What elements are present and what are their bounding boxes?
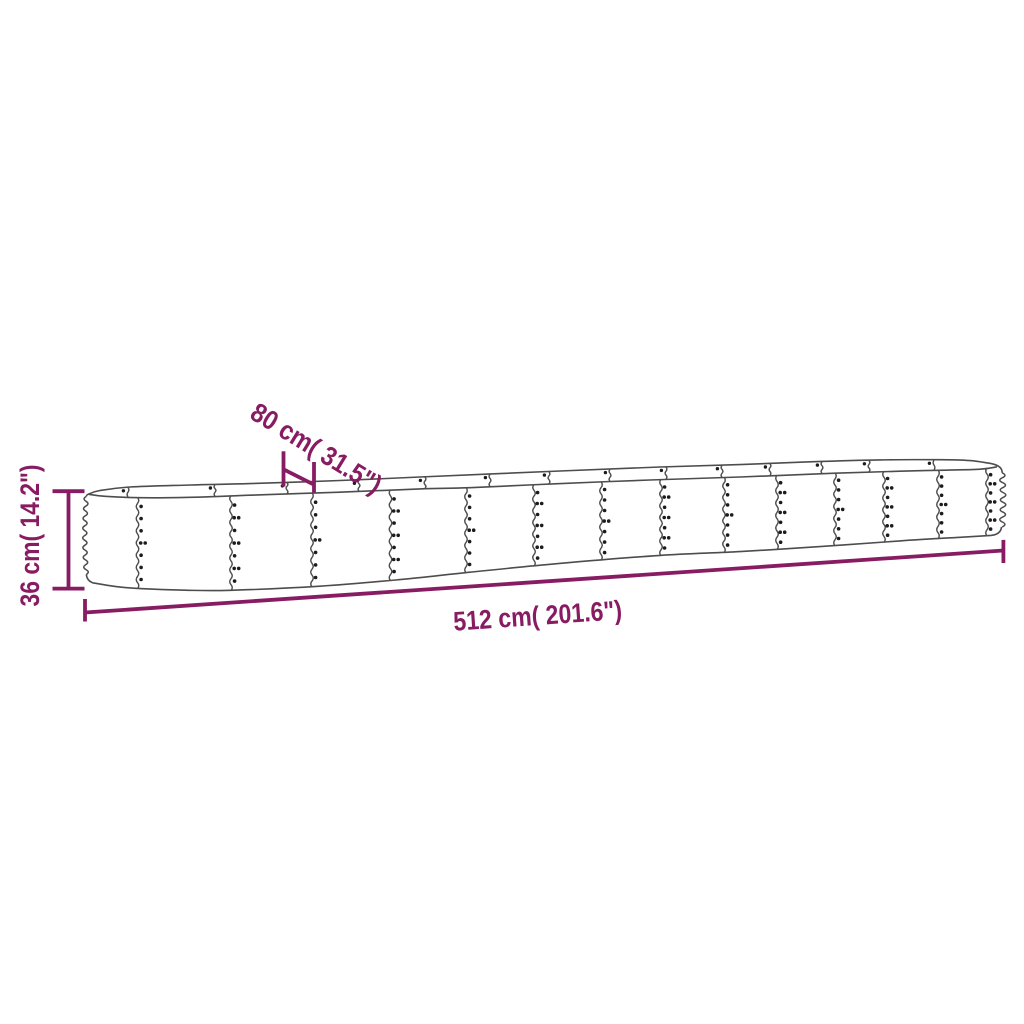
svg-text:36 cm( 14.2"): 36 cm( 14.2"): [15, 465, 45, 607]
